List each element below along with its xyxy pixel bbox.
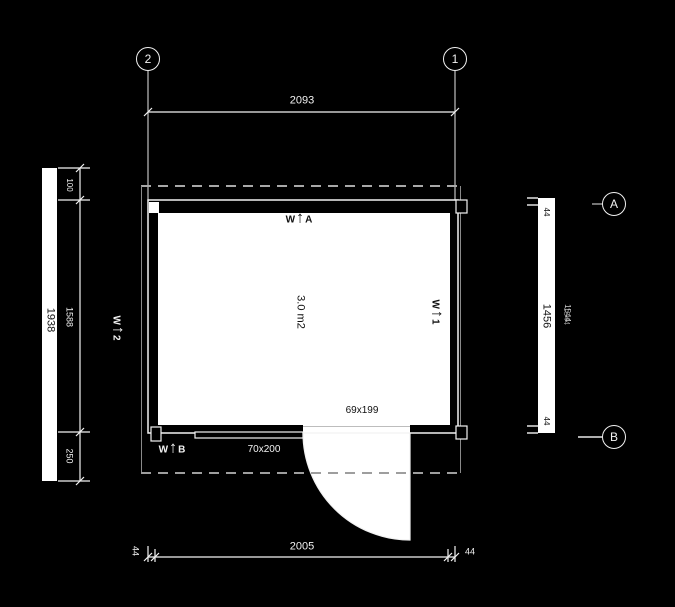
right-arrow-icon: ↑ — [430, 310, 443, 318]
dim-left-top: 100 — [65, 178, 73, 191]
floorplan-linework — [0, 0, 675, 607]
dim-right-overall: 1544 — [563, 304, 571, 322]
up-arrow-icon: ↑ — [296, 213, 304, 226]
dim-left-total: 1938 — [45, 308, 56, 332]
grid-bubble-b: B — [602, 425, 626, 449]
marker-w-b-id: B — [178, 445, 185, 455]
dim-right-bottom: 44 — [542, 417, 550, 426]
marker-w-b-letter: W — [159, 445, 168, 455]
door-threshold — [303, 424, 410, 433]
floorplan-canvas: 2 1 A B 2093 2005 44 44 1938 100 1588 25… — [0, 0, 675, 607]
marker-w-2: W↑2 — [111, 315, 124, 340]
dim-left-bottom: 250 — [65, 448, 74, 463]
grid-bubble-2-label: 2 — [145, 52, 152, 66]
right-dimension-ticks — [527, 198, 538, 433]
corner-post-top-left — [149, 202, 159, 213]
marker-w-a-id: A — [305, 215, 312, 225]
right-arrow-icon: ↑ — [111, 326, 124, 334]
corner-post-bottom-left — [151, 427, 161, 441]
grid-bubble-1-label: 1 — [452, 52, 459, 66]
marker-w-b: W↑B — [159, 443, 186, 456]
top-dimension-line — [144, 108, 459, 116]
room-area-label: 3.0 m2 — [295, 295, 306, 329]
dim-top-width: 2093 — [290, 96, 314, 107]
marker-w-1-letter: W — [430, 299, 440, 308]
marker-w-a-letter: W — [286, 215, 295, 225]
grid-bubble-b-label: B — [610, 430, 618, 444]
dim-right-top: 44 — [542, 208, 550, 217]
marker-w-a: W↑A — [286, 213, 313, 226]
window-bar — [195, 432, 303, 438]
dim-bottom-width: 2005 — [290, 542, 314, 553]
dim-bottom-right-end: 44 — [465, 548, 475, 557]
dim-bottom-left-end: 44 — [131, 546, 140, 556]
marker-w-1-id: 1 — [430, 319, 440, 325]
window-size-label: 70x200 — [248, 445, 281, 455]
up-arrow-icon: ↑ — [169, 443, 177, 456]
grid-bubble-1: 1 — [443, 47, 467, 71]
marker-w-2-id: 2 — [111, 335, 121, 341]
grid-bubble-a-label: A — [610, 197, 618, 211]
marker-w-2-letter: W — [111, 315, 121, 324]
dim-left-mid: 1588 — [65, 307, 74, 327]
grid-bubble-2: 2 — [136, 47, 160, 71]
dim-right-total: 1456 — [541, 304, 552, 328]
corner-post-top-right — [456, 200, 467, 213]
door-swing-arc — [303, 433, 410, 540]
corner-post-bottom-right — [456, 426, 467, 439]
grid-bubble-a: A — [602, 192, 626, 216]
door-size-label: 69x199 — [346, 406, 379, 416]
marker-w-1: W↑1 — [430, 299, 443, 324]
